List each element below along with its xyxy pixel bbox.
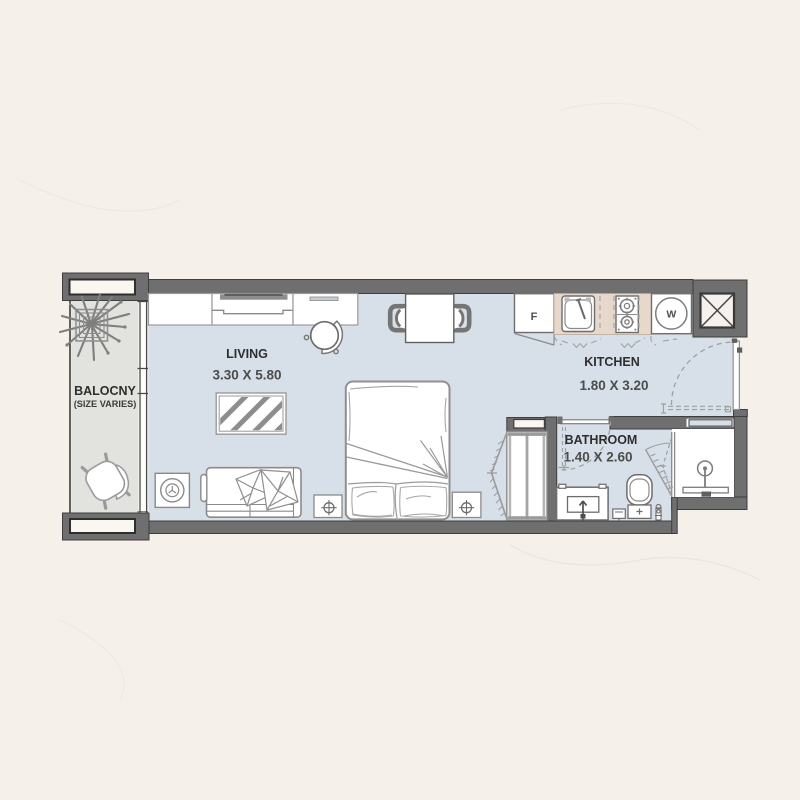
- svg-text:3.30 X 5.80: 3.30 X 5.80: [212, 368, 281, 383]
- svg-text:(SIZE VARIES): (SIZE VARIES): [74, 399, 137, 409]
- svg-text:1.40 X 2.60: 1.40 X 2.60: [563, 450, 632, 465]
- svg-text:KITCHEN: KITCHEN: [584, 355, 640, 369]
- svg-text:LIVING: LIVING: [226, 347, 268, 361]
- svg-text:W: W: [666, 309, 676, 321]
- svg-text:BALOCNY: BALOCNY: [74, 384, 136, 398]
- svg-text:F: F: [531, 311, 538, 323]
- svg-text:1.80 X 3.20: 1.80 X 3.20: [579, 378, 648, 393]
- svg-text:BATHROOM: BATHROOM: [565, 433, 638, 447]
